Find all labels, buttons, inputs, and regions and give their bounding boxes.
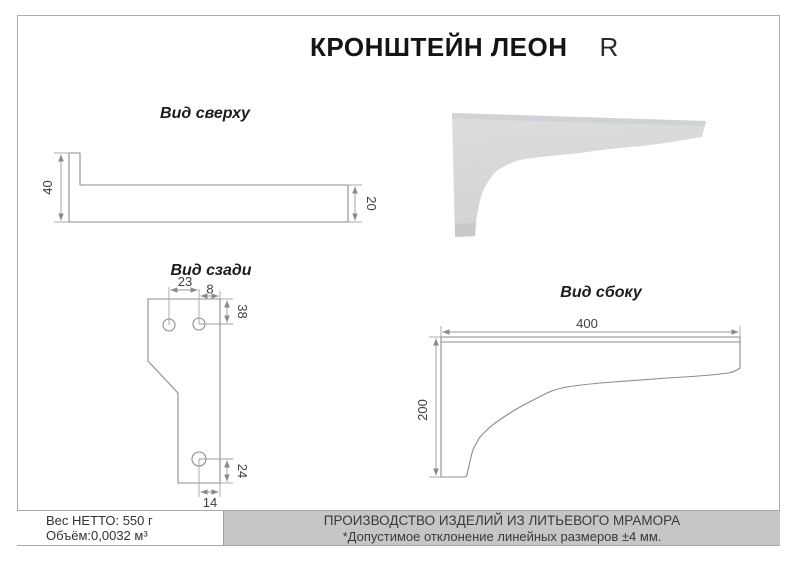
- page-title-text: КРОНШТЕЙН ЛЕОН: [310, 32, 568, 62]
- back-view-drawing: 23 8 38 24 14: [140, 270, 255, 515]
- top-view-drawing: 40 20: [40, 145, 375, 235]
- tolerance-text: *Допустимое отклонение линейных размеров…: [343, 529, 662, 544]
- dim-back-hole-spacing: 23: [178, 274, 192, 289]
- dim-back-hole-to-bottom: 24: [235, 464, 250, 478]
- side-view-label: Вид сбоку: [531, 284, 671, 302]
- dim-side-length: 400: [576, 316, 598, 331]
- production-text: ПРОИЗВОДСТВО ИЗДЕЛИЙ ИЗ ЛИТЬЕВОГО МРАМОР…: [324, 513, 680, 529]
- dim-top-height: 40: [40, 180, 55, 194]
- top-view-label: Вид сверху: [135, 105, 275, 123]
- volume-text: Объём:0,0032 м³: [46, 528, 219, 543]
- dim-side-height: 200: [415, 399, 430, 421]
- dim-top-thickness: 20: [364, 196, 379, 210]
- dim-back-hole-to-side: 14: [203, 495, 217, 510]
- footer-specs: Вес НЕТТО: 550 г Объём:0,0032 м³: [17, 511, 223, 545]
- dim-back-hole-to-edge: 8: [206, 282, 213, 297]
- footer-strip: Вес НЕТТО: 550 г Объём:0,0032 м³ ПРОИЗВО…: [17, 510, 780, 546]
- bracket-photo: [445, 105, 715, 245]
- net-weight-text: Вес НЕТТО: 550 г: [46, 513, 219, 528]
- side-view-drawing: 400 200: [415, 310, 760, 495]
- page-title: КРОНШТЕЙН ЛЕОНR: [310, 33, 618, 61]
- photo-foot: [455, 223, 476, 237]
- page-title-suffix: R: [600, 32, 619, 62]
- footer-production: ПРОИЗВОДСТВО ИЗДЕЛИЙ ИЗ ЛИТЬЕВОГО МРАМОР…: [223, 511, 780, 545]
- dim-back-top-to-hole: 38: [235, 304, 250, 318]
